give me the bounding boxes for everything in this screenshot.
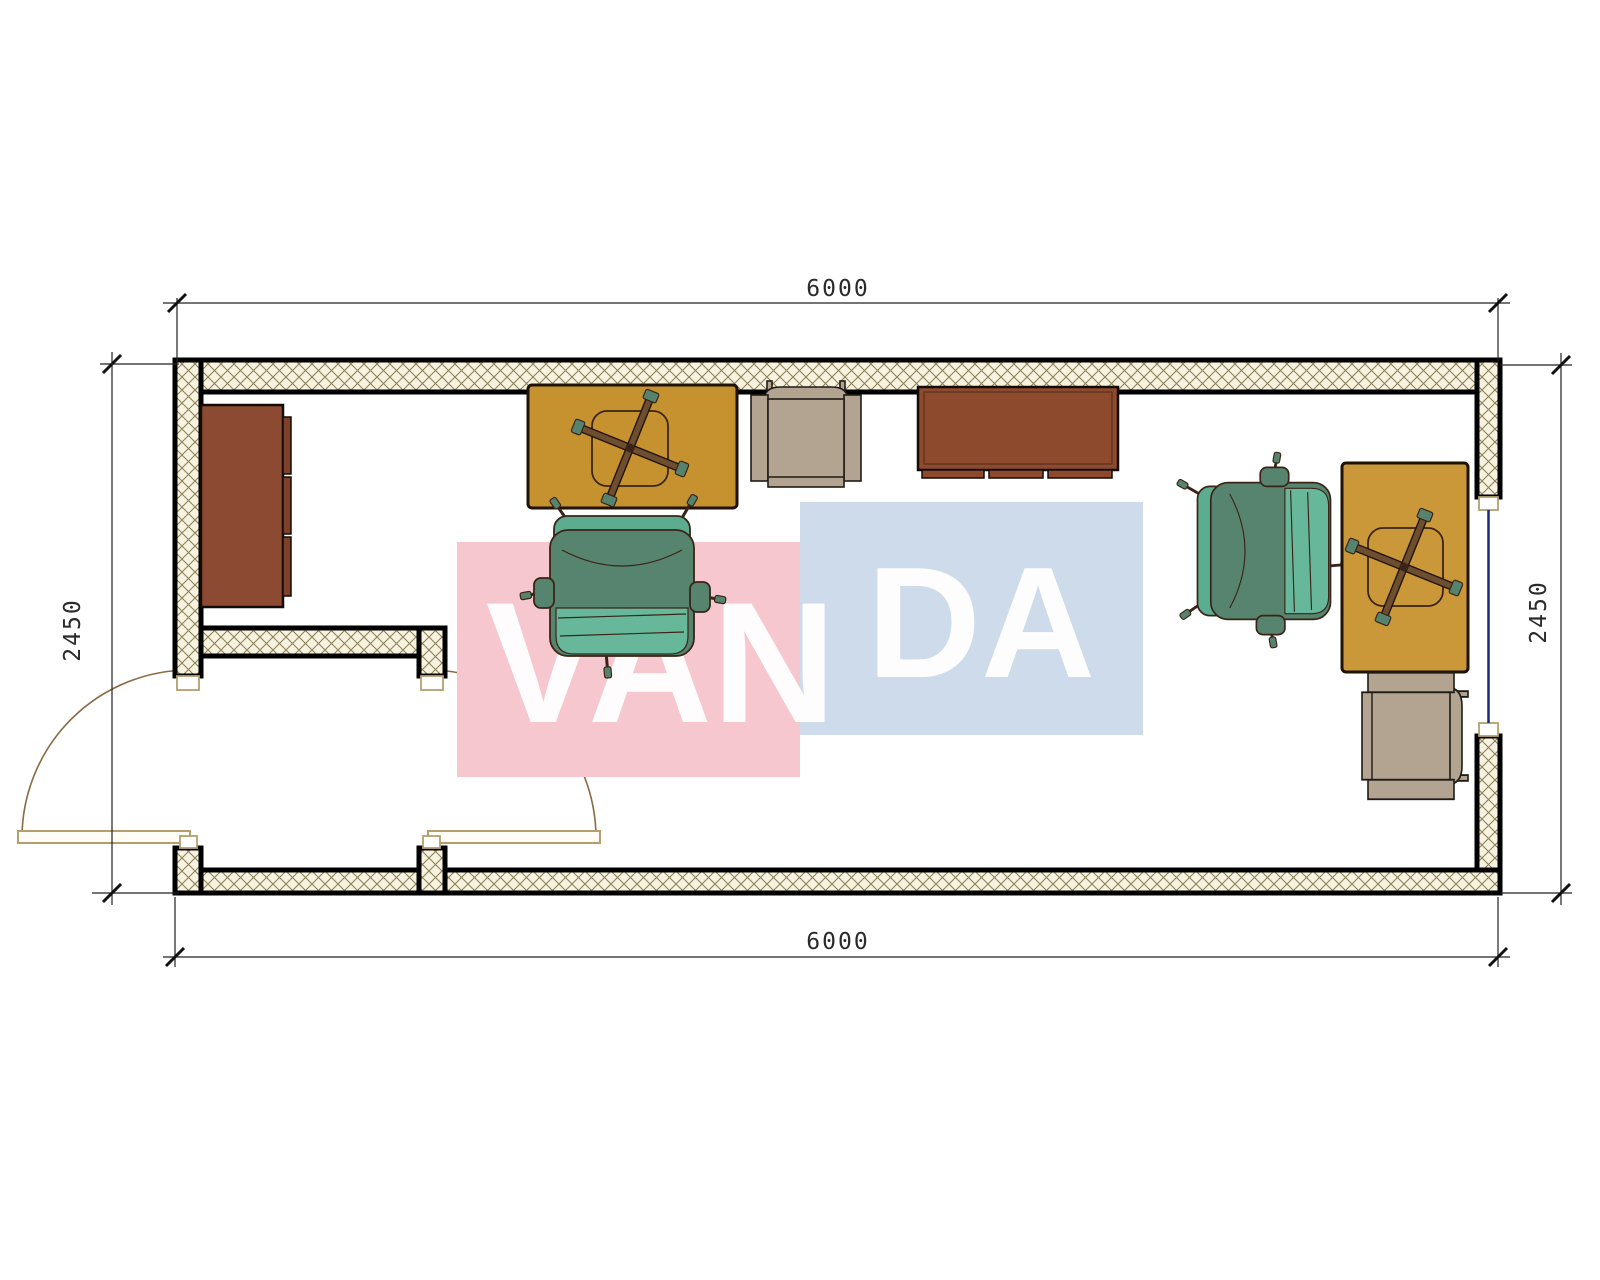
dimension-top: 6000	[163, 276, 1510, 362]
interior-partition-wall	[201, 628, 445, 656]
office-chair-right	[1176, 452, 1351, 648]
visitor-armchair-bottom-right	[1362, 673, 1468, 800]
interior-partition-stub	[419, 628, 445, 676]
wall-cabinet-symbol	[201, 405, 291, 607]
jamb-cap	[423, 836, 440, 848]
jamb-cap	[421, 676, 443, 690]
dimension-left-label: 2450	[60, 598, 86, 661]
sideboard-symbol	[918, 387, 1118, 478]
door-jamb-stub-middle	[419, 848, 445, 893]
visitor-armchair-top	[751, 381, 861, 487]
jamb-cap	[1479, 723, 1498, 736]
exterior-wall-right-upper	[1477, 360, 1500, 497]
watermark-text-da: DA	[867, 535, 1095, 711]
dimension-top-label: 6000	[806, 276, 869, 302]
dimension-right: 2450	[1500, 353, 1572, 905]
dimension-bottom-label: 6000	[806, 929, 869, 955]
jamb-cap	[1479, 497, 1498, 510]
exterior-wall-left	[175, 360, 201, 676]
dimension-bottom: 6000	[163, 897, 1510, 967]
jamb-cap	[180, 836, 197, 848]
door-jamb-stub-corner	[175, 848, 201, 893]
dimension-left: 2450	[60, 352, 179, 905]
floor-plan-page: VAN DA 6000	[0, 0, 1600, 1280]
exterior-door-leaf	[18, 831, 190, 843]
dimension-right-label: 2450	[1526, 580, 1552, 643]
floor-plan-canvas: VAN DA 6000	[0, 0, 1600, 1280]
desk-right-symbol	[1325, 463, 1484, 672]
exterior-door-swing-arc	[22, 670, 190, 838]
exterior-wall-bottom	[175, 870, 1500, 893]
interior-door-leaf	[428, 831, 600, 843]
jamb-cap	[177, 676, 199, 690]
